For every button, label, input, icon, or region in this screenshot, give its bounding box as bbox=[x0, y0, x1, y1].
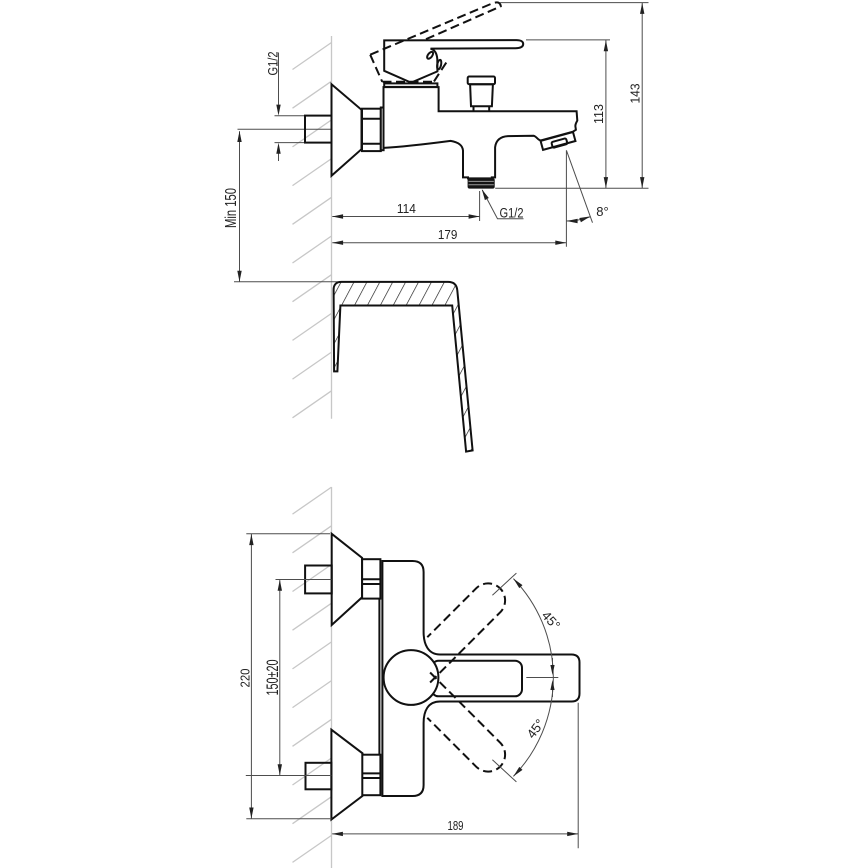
svg-text:189: 189 bbox=[448, 818, 464, 833]
svg-text:220: 220 bbox=[238, 668, 252, 687]
svg-text:G1/2: G1/2 bbox=[500, 206, 524, 221]
svg-text:179: 179 bbox=[438, 227, 458, 242]
svg-text:143: 143 bbox=[628, 84, 643, 104]
svg-text:Min 150: Min 150 bbox=[223, 188, 240, 228]
svg-text:150±20: 150±20 bbox=[264, 660, 282, 696]
svg-text:113: 113 bbox=[591, 104, 606, 124]
svg-text:8°: 8° bbox=[596, 204, 608, 219]
svg-text:114: 114 bbox=[397, 201, 416, 216]
svg-text:G1/2: G1/2 bbox=[265, 52, 280, 76]
